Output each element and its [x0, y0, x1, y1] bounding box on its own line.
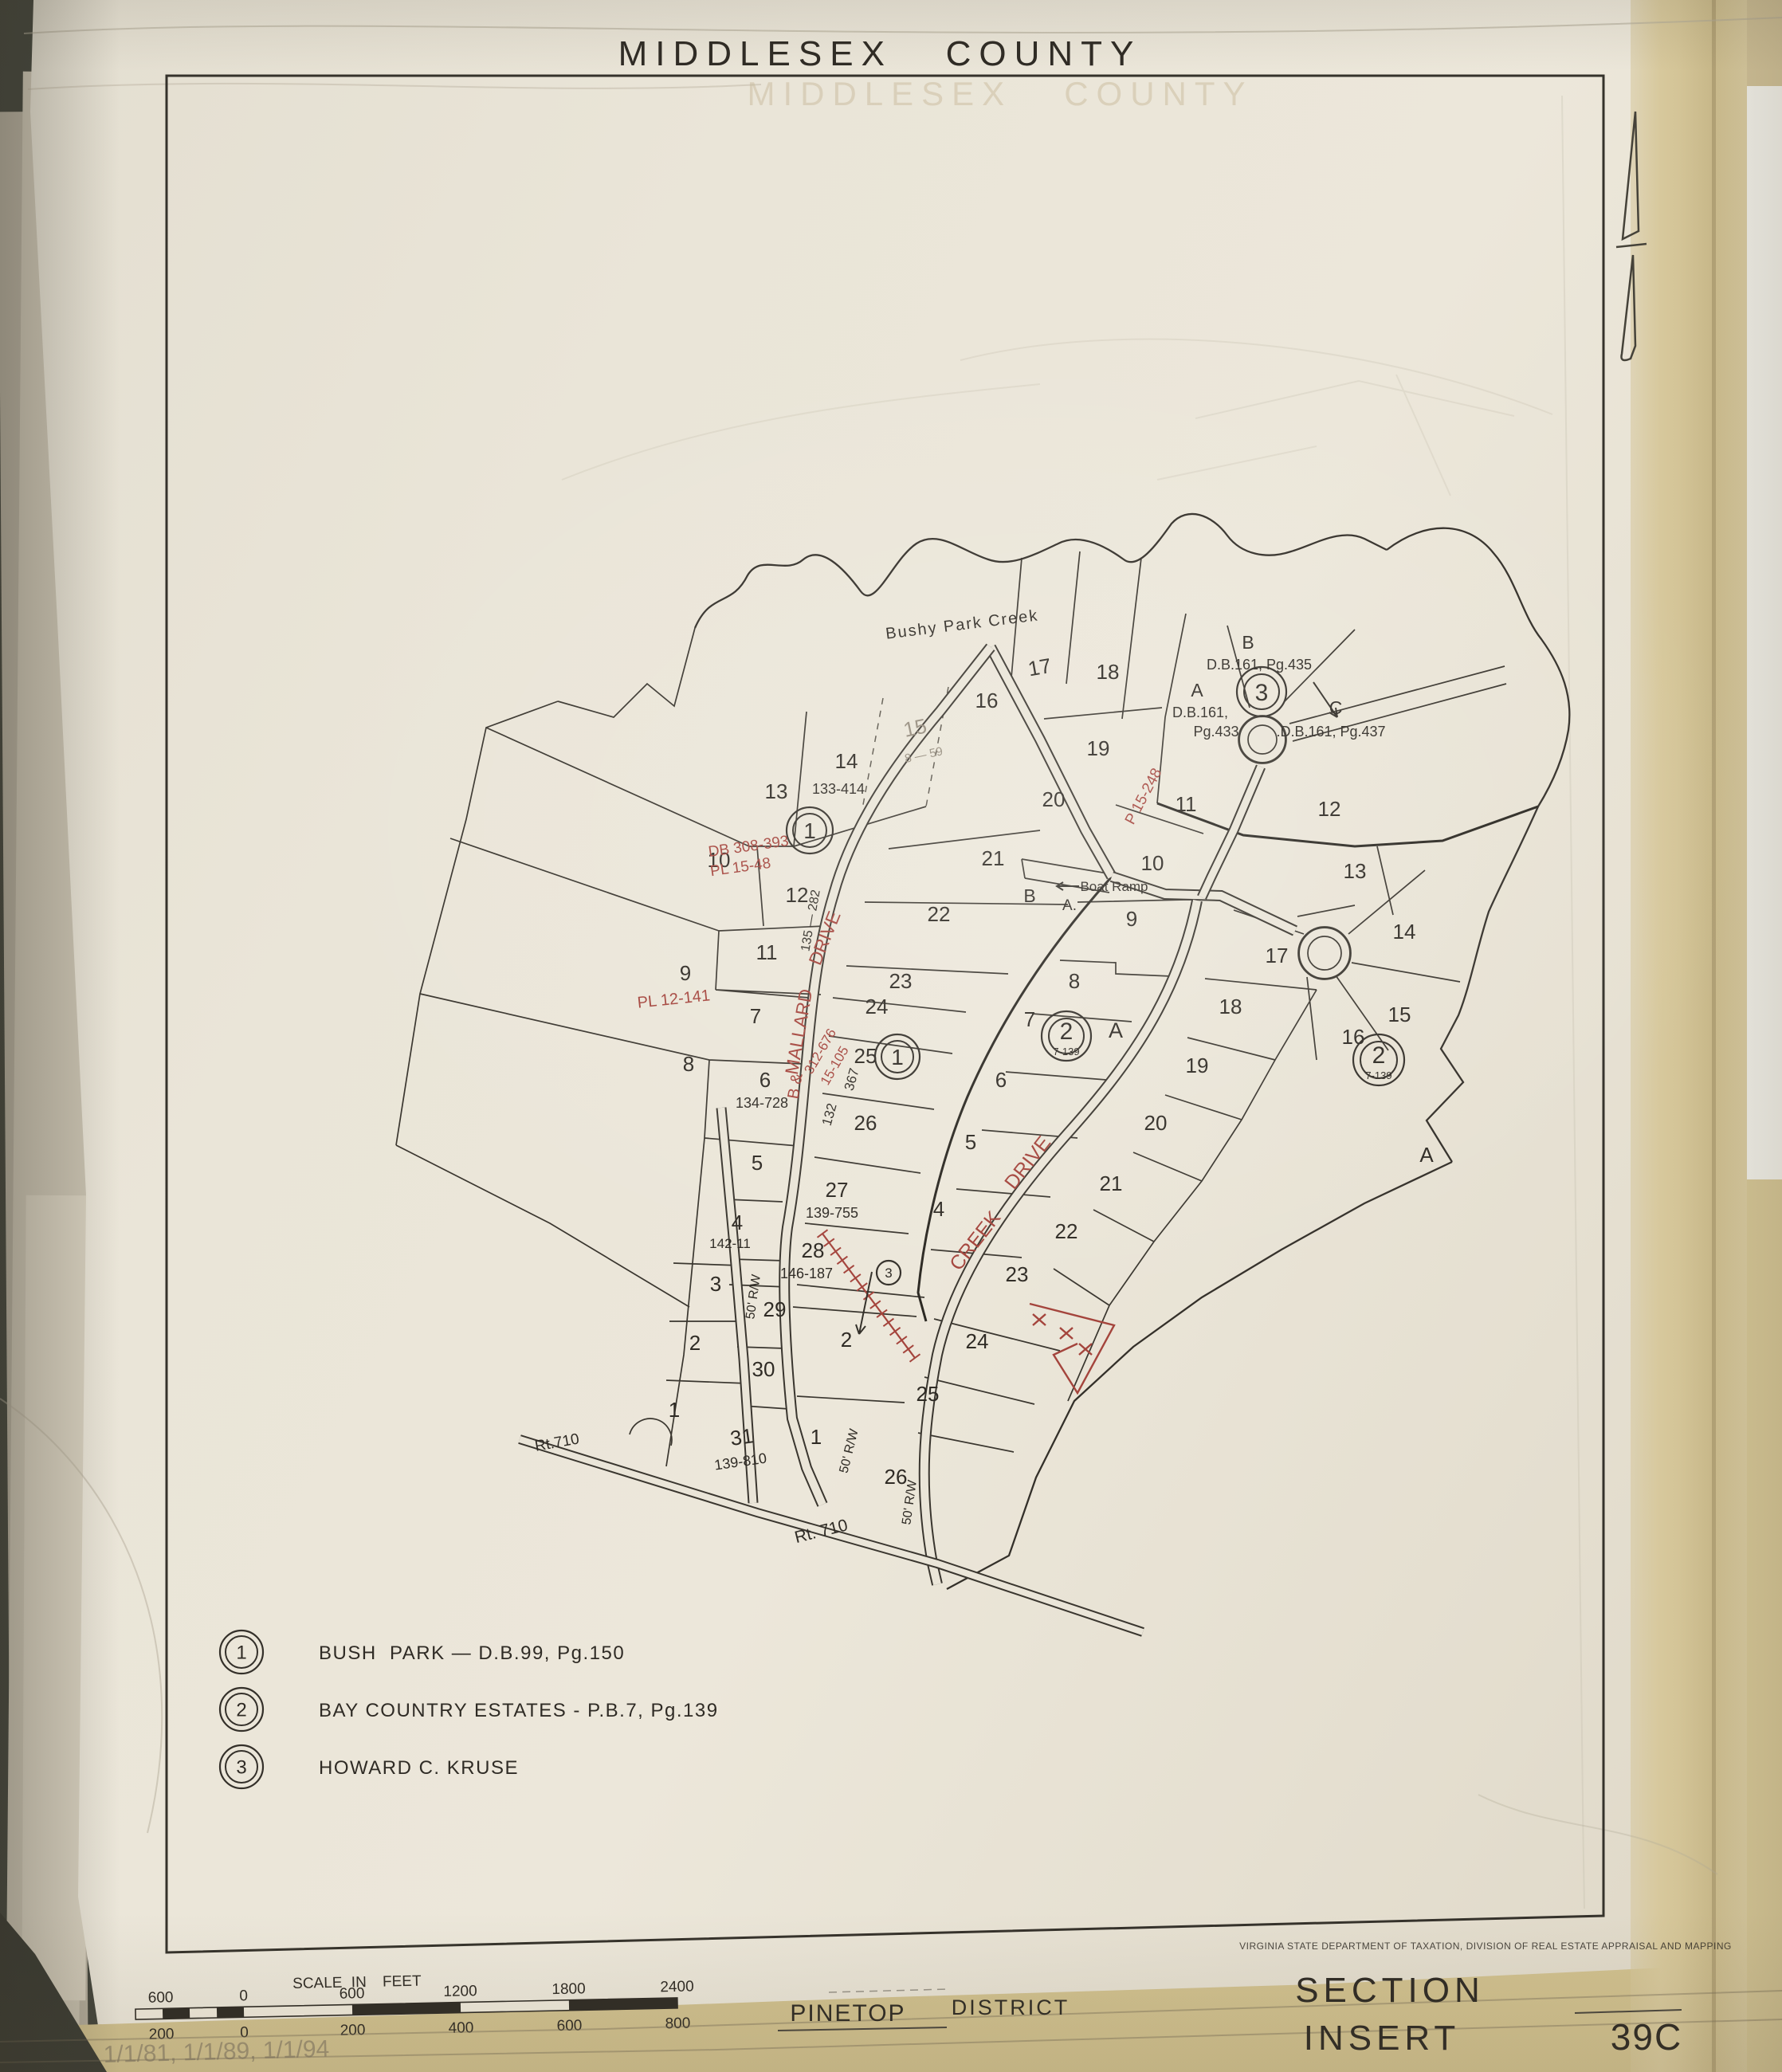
tape-crease — [1712, 0, 1716, 2072]
page-edge-strip — [1747, 1179, 1782, 2072]
page-edge-strip — [1747, 0, 1782, 86]
binding-tape — [1631, 0, 1747, 2072]
page-edge-strip — [1747, 86, 1782, 1179]
map-page-paper — [0, 0, 1782, 2072]
scanned-map-photo: SCALEINFEET60006001200180024002000200400… — [0, 0, 1782, 2072]
